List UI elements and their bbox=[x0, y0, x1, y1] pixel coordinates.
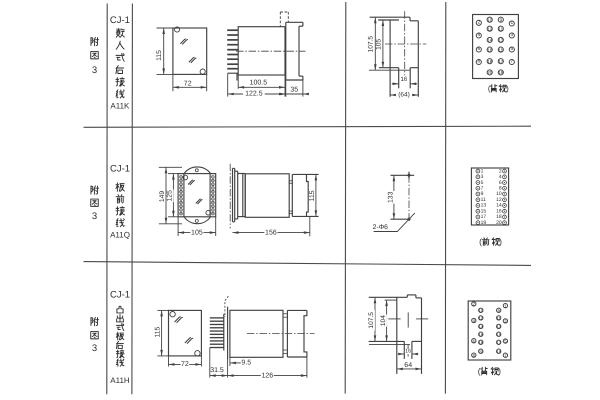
svg-text:115: 115 bbox=[156, 50, 163, 61]
svg-text:17: 17 bbox=[498, 59, 503, 64]
svg-text:13: 13 bbox=[497, 324, 501, 329]
svg-text:8: 8 bbox=[477, 59, 480, 65]
svg-text:16: 16 bbox=[405, 349, 411, 355]
svg-text:16: 16 bbox=[487, 47, 492, 52]
svg-text:72: 72 bbox=[184, 81, 192, 88]
svg-text:CJ-1: CJ-1 bbox=[110, 164, 130, 175]
svg-text:104: 104 bbox=[380, 315, 387, 326]
svg-text:31.5: 31.5 bbox=[210, 367, 224, 374]
svg-text:20: 20 bbox=[496, 220, 502, 226]
svg-text:15: 15 bbox=[498, 47, 503, 52]
svg-text:A11K: A11K bbox=[110, 102, 130, 111]
svg-text:105: 105 bbox=[191, 229, 203, 236]
svg-text:3: 3 bbox=[92, 65, 97, 76]
svg-text:105: 105 bbox=[375, 39, 382, 50]
svg-text:115: 115 bbox=[309, 190, 316, 201]
svg-text:19: 19 bbox=[481, 220, 487, 226]
svg-text:115: 115 bbox=[155, 326, 162, 337]
svg-text:3: 3 bbox=[92, 343, 97, 354]
svg-text:125: 125 bbox=[167, 190, 174, 202]
svg-text:CJ-1: CJ-1 bbox=[110, 290, 130, 301]
svg-text:7: 7 bbox=[510, 59, 513, 65]
svg-text:64: 64 bbox=[404, 362, 412, 369]
svg-text:(64): (64) bbox=[398, 92, 410, 99]
svg-text:12: 12 bbox=[487, 26, 492, 31]
svg-text:13: 13 bbox=[498, 38, 503, 43]
svg-text:): ) bbox=[499, 237, 502, 247]
svg-text:122.5: 122.5 bbox=[245, 91, 263, 98]
svg-text:17: 17 bbox=[497, 340, 501, 345]
svg-text:12: 12 bbox=[479, 316, 483, 321]
svg-text:(: ( bbox=[478, 366, 481, 376]
svg-text:72: 72 bbox=[181, 361, 189, 368]
svg-text:9: 9 bbox=[498, 308, 500, 313]
svg-text:16: 16 bbox=[479, 332, 483, 337]
svg-text:1: 1 bbox=[510, 20, 513, 26]
svg-text:126: 126 bbox=[261, 372, 273, 379]
svg-text:CJ-1: CJ-1 bbox=[110, 15, 130, 26]
svg-text:156: 156 bbox=[265, 229, 277, 236]
svg-text:(: ( bbox=[488, 84, 491, 93]
svg-text:): ) bbox=[506, 84, 509, 93]
svg-text:11: 11 bbox=[497, 316, 501, 321]
svg-text:107.5: 107.5 bbox=[367, 36, 374, 53]
svg-text:2: 2 bbox=[477, 20, 480, 26]
svg-text:149: 149 bbox=[159, 191, 166, 203]
svg-text:19: 19 bbox=[498, 70, 503, 75]
svg-text:4: 4 bbox=[477, 32, 480, 38]
svg-text:(: ( bbox=[479, 237, 482, 247]
svg-text:6: 6 bbox=[477, 46, 480, 52]
svg-text:11: 11 bbox=[499, 26, 504, 31]
svg-text:18: 18 bbox=[487, 59, 492, 64]
svg-text:16: 16 bbox=[400, 76, 407, 83]
svg-text:20: 20 bbox=[487, 70, 492, 75]
svg-text:9.5: 9.5 bbox=[241, 359, 251, 366]
svg-text:5: 5 bbox=[510, 46, 513, 52]
svg-text:A11H: A11H bbox=[110, 376, 130, 385]
svg-text:): ) bbox=[498, 366, 501, 376]
svg-text:107.5: 107.5 bbox=[368, 312, 375, 329]
svg-text:35: 35 bbox=[290, 87, 298, 94]
svg-text:100.5: 100.5 bbox=[250, 79, 268, 86]
svg-text:10: 10 bbox=[487, 17, 492, 22]
svg-text:18: 18 bbox=[479, 340, 483, 345]
svg-text:19: 19 bbox=[497, 349, 501, 354]
svg-text:15: 15 bbox=[497, 332, 501, 337]
svg-text:3: 3 bbox=[510, 32, 513, 38]
svg-text:2-Φ6: 2-Φ6 bbox=[373, 224, 388, 231]
svg-text:133: 133 bbox=[388, 191, 395, 203]
svg-text:14: 14 bbox=[487, 38, 492, 43]
svg-text:A11Q: A11Q bbox=[110, 231, 130, 240]
svg-text:3: 3 bbox=[92, 211, 97, 222]
